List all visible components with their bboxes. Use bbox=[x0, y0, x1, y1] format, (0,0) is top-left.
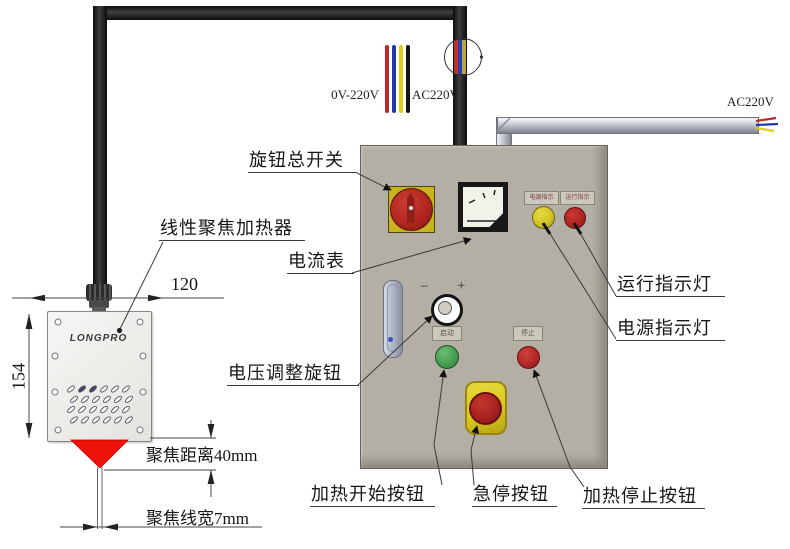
stop-plate: 停止 bbox=[513, 326, 543, 341]
label-knob-switch: 旋钮总开关 bbox=[248, 150, 357, 173]
label-heater: 线性聚焦加热器 bbox=[159, 218, 305, 241]
run-indicator-plate: 运行指示 bbox=[560, 191, 595, 205]
label-voltage-range: 0V-220V bbox=[330, 87, 379, 103]
label-ac220v-left: AC220V bbox=[412, 87, 459, 103]
cable-left-vertical bbox=[93, 6, 107, 286]
label-estop: 急停按钮 bbox=[472, 484, 557, 507]
dim-width-120: 120 bbox=[171, 274, 198, 295]
voltage-knob-cap bbox=[438, 301, 452, 315]
label-ac220v-right: AC220V bbox=[727, 94, 774, 110]
dim-focus-line-width: 聚焦线宽7mm bbox=[146, 504, 249, 529]
cable-connector bbox=[86, 284, 112, 301]
stop-button-red bbox=[517, 346, 540, 369]
label-heat-start: 加热开始按钮 bbox=[310, 484, 435, 507]
start-button-green bbox=[435, 345, 459, 369]
conduit-right-horizontal bbox=[497, 117, 759, 134]
wire-blue bbox=[392, 45, 396, 113]
emergency-stop-button bbox=[469, 392, 502, 425]
label-voltage-knob: 电压调整旋钮 bbox=[227, 363, 359, 386]
dim-focus-distance: 聚焦距离40mm bbox=[146, 441, 257, 466]
label-power-indicator: 电源指示灯 bbox=[616, 318, 725, 341]
cable-top-horizontal bbox=[93, 6, 467, 20]
wire-red bbox=[385, 45, 389, 113]
cable-right-vertical bbox=[453, 6, 467, 146]
mains-wire-blue bbox=[756, 124, 778, 125]
label-ammeter: 电流表 bbox=[287, 251, 354, 274]
mains-wire-red bbox=[756, 118, 776, 121]
wire-bundle bbox=[385, 45, 410, 113]
heater-logo: LONGPRO bbox=[47, 333, 150, 344]
minus-sign: − bbox=[420, 279, 428, 296]
main-switch-dot bbox=[409, 206, 413, 210]
wire-black bbox=[406, 45, 410, 113]
label-run-indicator: 运行指示灯 bbox=[616, 274, 725, 297]
label-heat-stop: 加热停止按钮 bbox=[582, 486, 705, 509]
wiring-diagram: 电源指示 运行指示 − + 启动 停止 LONGPRO 旋钮总开关 线性聚焦加热… bbox=[0, 0, 790, 549]
focus-cone bbox=[71, 440, 128, 468]
wire-yellow bbox=[399, 45, 403, 113]
plus-sign: + bbox=[457, 278, 465, 295]
dim-height-154: 154 bbox=[9, 355, 30, 399]
run-lamp-red bbox=[564, 207, 586, 229]
heater-body bbox=[47, 311, 152, 442]
power-lamp-yellow bbox=[532, 206, 555, 229]
start-plate: 启动 bbox=[432, 326, 462, 341]
cable-inner-wires bbox=[454, 40, 466, 74]
power-indicator-plate: 电源指示 bbox=[524, 191, 559, 205]
door-handle-lock-dot bbox=[388, 337, 393, 342]
